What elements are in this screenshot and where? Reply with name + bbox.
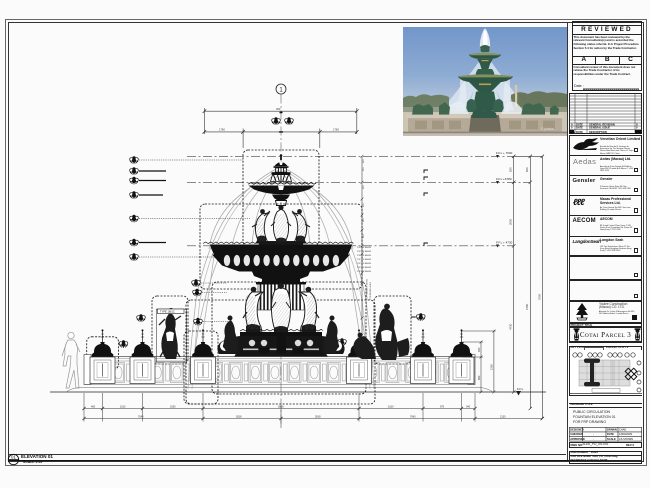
svg-text:970: 970: [440, 405, 445, 408]
svg-text:TOP PARAPET LEVEL: TOP PARAPET LEVEL: [366, 278, 369, 300]
svg-text:690: 690: [363, 203, 365, 207]
svg-text:1530: 1530: [170, 405, 176, 408]
svg-text:1: 1: [279, 87, 283, 93]
svg-text:2818: 2818: [236, 415, 242, 418]
svg-text:TYPE 1B/1C: TYPE 1B/1C: [160, 310, 175, 314]
svg-text:7640: 7640: [410, 415, 416, 418]
svg-text:TOP OF BASIN: TOP OF BASIN: [357, 270, 372, 273]
svg-text:690: 690: [363, 218, 365, 222]
svg-text:TOP OF BASIN: TOP OF BASIN: [357, 262, 372, 265]
svg-text:690: 690: [363, 167, 365, 171]
svg-text:TOP OF BASIN: TOP OF BASIN: [357, 246, 372, 249]
svg-text:2818: 2818: [315, 415, 321, 418]
svg-text:4730: 4730: [509, 323, 513, 330]
svg-text:450: 450: [477, 347, 481, 352]
svg-text:1760: 1760: [333, 128, 339, 132]
svg-text:2130: 2130: [500, 415, 506, 418]
svg-text:1760: 1760: [219, 128, 225, 132]
svg-text:690: 690: [363, 159, 365, 163]
svg-text:F.F.L + 4730: F.F.L + 4730: [496, 241, 513, 245]
svg-text:F.F.L: F.F.L: [517, 387, 524, 391]
svg-text:300: 300: [276, 107, 281, 111]
svg-text:890: 890: [477, 375, 481, 380]
svg-text:2818: 2818: [278, 405, 284, 408]
svg-text:TOP BASIN LEVEL: TOP BASIN LEVEL: [369, 281, 372, 300]
svg-text:1010: 1010: [120, 405, 126, 408]
svg-text:690: 690: [363, 234, 365, 238]
svg-text:1350: 1350: [490, 364, 494, 370]
svg-text:TOP OF BASIN: TOP OF BASIN: [357, 254, 372, 257]
svg-text:TOP OF BASIN: TOP OF BASIN: [357, 266, 372, 269]
svg-text:F.F.L +6780: F.F.L +6780: [496, 177, 512, 181]
svg-text:2050: 2050: [509, 218, 513, 225]
svg-text:7600: 7600: [538, 293, 542, 300]
svg-text:TOP OF BASIN: TOP OF BASIN: [357, 250, 372, 253]
svg-text:690: 690: [363, 185, 365, 189]
svg-text:TOP OF BASIN: TOP OF BASIN: [357, 258, 372, 261]
svg-text:820: 820: [509, 167, 513, 172]
svg-text:F.F.L + 7600: F.F.L + 7600: [496, 151, 513, 155]
svg-text:340: 340: [466, 405, 471, 408]
svg-text:1610: 1610: [388, 405, 394, 408]
svg-text:460: 460: [91, 405, 96, 408]
svg-text:820: 820: [525, 167, 529, 172]
svg-text:7640: 7640: [138, 415, 144, 418]
svg-text:6780: 6780: [525, 303, 529, 310]
